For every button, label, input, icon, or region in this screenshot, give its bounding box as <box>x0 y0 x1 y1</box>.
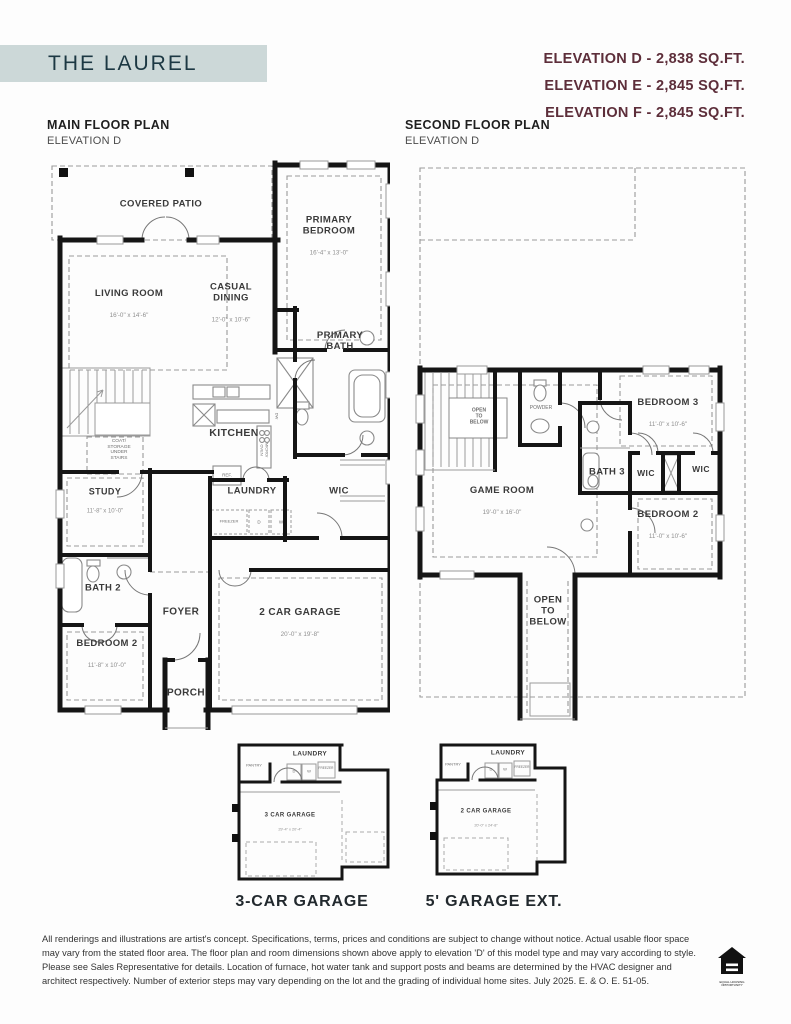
label-casual-dining: CASUAL DINING 12'-0" x 10'-6" <box>210 272 252 335</box>
second-floor-drawing <box>405 163 750 723</box>
caption-garage-ext: 5' GARAGE EXT. <box>409 893 579 911</box>
room-name: BEDROOM 2 <box>637 510 698 521</box>
label-primary-bath: PRIMARY BATH <box>317 331 363 353</box>
label-laundry: LAUNDRY <box>293 750 327 757</box>
label-coat-storage: COAT/ STORAGE UNDER STAIRS <box>107 439 130 461</box>
room-name: STUDY <box>87 487 123 497</box>
label-dryer: D <box>490 768 493 773</box>
patio-post <box>59 168 68 177</box>
room-name: LIVING ROOM <box>95 289 163 300</box>
main-floor-subtitle: ELEVATION D <box>47 135 170 147</box>
label-powder: POWDER <box>530 406 553 412</box>
label-garage: 2 CAR GARAGE 20'-0" x 19'-8" <box>259 595 340 649</box>
label-2car-garage-ext: 2 CAR GARAGE 20'-0" x 24'-8" <box>461 802 512 835</box>
label-living-room: LIVING ROOM 16'-0" x 14'-6" <box>95 278 163 330</box>
second-floor-plan: OPEN TO BELOW POWDER BEDROOM 3 11'-0" x … <box>405 163 750 723</box>
label-wic-right: WIC <box>692 465 710 475</box>
room-dims: 16'-0" x 14'-6" <box>95 312 163 319</box>
elevation-e: ELEVATION E - 2,845 SQ.FT. <box>544 73 745 100</box>
label-dryer: D <box>293 770 296 775</box>
label-open-to-below-hall: OPEN TO BELOW <box>529 596 566 629</box>
main-floor-header: MAIN FLOOR PLAN ELEVATION D <box>47 118 170 147</box>
label-washer: W <box>279 519 283 524</box>
label-pantry: PANTRY <box>445 763 461 768</box>
label-washer: W <box>503 768 507 773</box>
label-bedroom2: BEDROOM 2 11'-8" x 10'-0" <box>76 628 137 680</box>
label-game-room: GAME ROOM 19'-0" x 16'-0" <box>470 475 534 527</box>
disclaimer-text: All renderings and illustrations are art… <box>42 933 704 989</box>
wall-stub <box>430 802 437 810</box>
label-bath3: BATH 3 <box>589 468 625 479</box>
garage-option-3car: PANTRY LAUNDRY D W FREEZER 3 CAR GARAGE … <box>230 742 400 892</box>
label-open-to-below-stairs: OPEN TO BELOW <box>470 408 489 425</box>
second-floor-title: SECOND FLOOR PLAN <box>405 118 550 132</box>
main-floor-plan: COVERED PATIO PRIMARY BEDROOM 16'-4" x 1… <box>47 160 390 730</box>
equal-housing-house-icon <box>717 946 747 976</box>
room-name: BEDROOM 2 <box>76 639 137 650</box>
garage-option-ext: PANTRY LAUNDRY D W FREEZER 2 CAR GARAGE … <box>430 742 580 887</box>
room-dims: 20'-0" x 24'-8" <box>461 823 512 827</box>
room-name: 2 CAR GARAGE <box>461 808 512 815</box>
label-laundry: LAUNDRY <box>228 487 277 498</box>
room-dims: 11'-8" x 10'-0" <box>87 508 123 515</box>
label-bedroom3: BEDROOM 3 11'-0" x 10'-6" <box>637 387 698 439</box>
second-floor-subtitle: ELEVATION D <box>405 135 550 147</box>
label-freezer: FREEZER <box>319 767 334 771</box>
label-wic-left: WIC <box>637 469 655 479</box>
room-dims: 16'-4" x 13'-0" <box>303 249 355 256</box>
room-name: CASUAL DINING <box>210 283 252 305</box>
label-freezer: FREEZER <box>220 520 239 525</box>
room-dims: 11'-8" x 10'-0" <box>76 662 137 669</box>
label-study: STUDY 11'-8" x 10'-0" <box>87 476 123 525</box>
label-3car-garage: 3 CAR GARAGE 29'-4" x 20'-4" <box>265 806 316 839</box>
stairs <box>60 368 150 436</box>
room-dims: 29'-4" x 20'-4" <box>265 827 316 831</box>
label-primary-bedroom: PRIMARY BEDROOM 16'-4" x 13'-0" <box>303 205 355 268</box>
label-ref: REF. <box>222 472 232 477</box>
caption-3car-garage: 3-CAR GARAGE <box>217 893 387 911</box>
patio-post <box>185 168 194 177</box>
floor-plan-sheet: THE LAUREL ELEVATION D - 2,838 SQ.FT. EL… <box>0 0 791 1024</box>
wall-stub <box>232 834 239 842</box>
room-dims: 12'-0" x 10'-6" <box>210 316 252 323</box>
label-covered-patio: COVERED PATIO <box>120 200 202 211</box>
main-floor-title: MAIN FLOOR PLAN <box>47 118 170 132</box>
title-band: THE LAUREL <box>0 45 267 82</box>
label-wic: WIC <box>329 487 349 498</box>
equal-housing-logo: EQUAL HOUSING OPPORTUNITY <box>716 946 748 988</box>
elevation-f: ELEVATION F - 2,845 SQ.FT. <box>544 100 745 127</box>
label-pantry: PANTRY <box>246 764 262 769</box>
roof-outline <box>420 168 745 713</box>
label-laundry: LAUNDRY <box>491 749 525 756</box>
room-dims: 11'-0" x 10'-6" <box>637 533 698 540</box>
equal-housing-caption: EQUAL HOUSING OPPORTUNITY <box>716 981 748 988</box>
room-name: 2 CAR GARAGE <box>259 606 340 618</box>
room-dims: 20'-0" x 19'-8" <box>259 630 340 637</box>
room-name: GAME ROOM <box>470 486 534 497</box>
room-dims: 11'-0" x 10'-6" <box>637 421 698 428</box>
room-name: 3 CAR GARAGE <box>265 812 316 819</box>
label-kitchen: KITCHEN <box>209 427 258 439</box>
label-bedroom2-up: BEDROOM 2 11'-0" x 10'-6" <box>637 499 698 551</box>
second-floor-header: SECOND FLOOR PLAN ELEVATION D <box>405 118 550 147</box>
label-washer: W <box>307 770 311 775</box>
label-foyer: FOYER <box>163 606 199 618</box>
room-name: PRIMARY BEDROOM <box>303 216 355 238</box>
room-dims: 19'-0" x 16'-0" <box>470 509 534 516</box>
label-porch: PORCH <box>167 687 205 699</box>
page-title: THE LAUREL <box>48 52 198 76</box>
wall-stub <box>430 832 437 840</box>
elevation-list: ELEVATION D - 2,838 SQ.FT. ELEVATION E -… <box>544 46 745 127</box>
wall-stub <box>232 804 239 812</box>
room-name: BEDROOM 3 <box>637 398 698 409</box>
elevation-d: ELEVATION D - 2,838 SQ.FT. <box>544 46 745 73</box>
label-dishwasher: DW <box>274 413 279 420</box>
label-dryer: D <box>257 519 260 524</box>
label-bath2: BATH 2 <box>85 584 121 595</box>
label-freezer: FREEZER <box>515 766 530 770</box>
label-micro-oven: MICRO/ OVEN <box>259 443 268 457</box>
